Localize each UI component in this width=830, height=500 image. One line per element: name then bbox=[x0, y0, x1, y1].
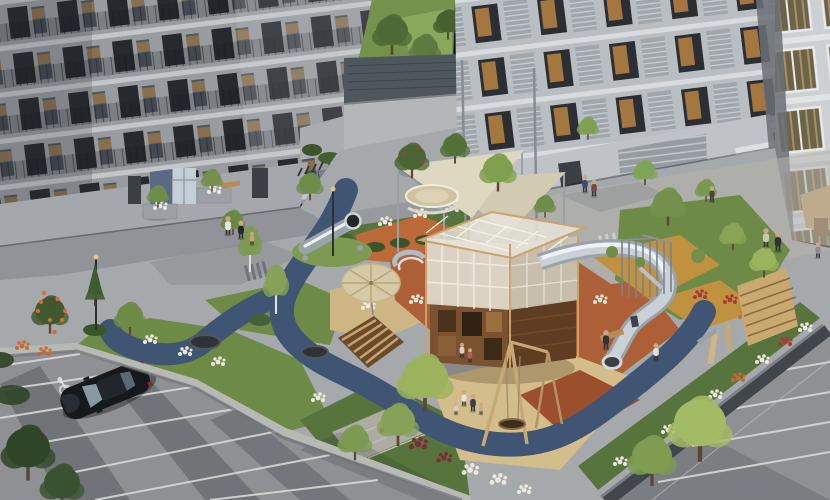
render-viewport bbox=[0, 0, 830, 500]
play-tower bbox=[420, 212, 584, 384]
scene-canvas bbox=[0, 0, 830, 500]
